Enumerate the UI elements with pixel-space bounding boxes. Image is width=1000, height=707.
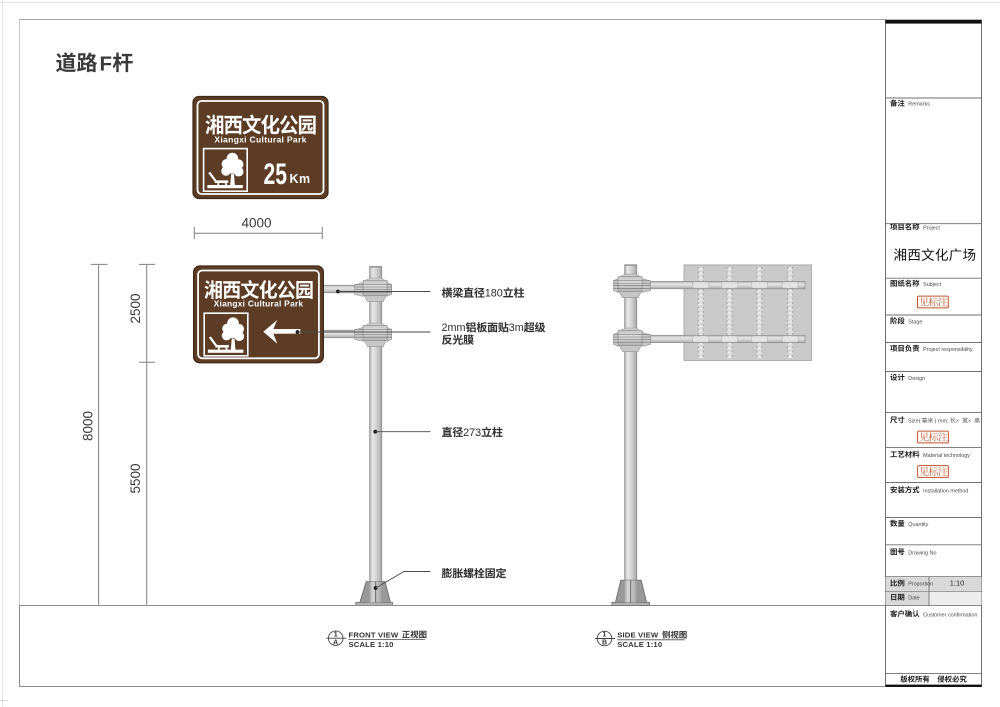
svg-text:Design: Design [908, 376, 925, 382]
svg-text:4000: 4000 [241, 216, 271, 231]
svg-text:180: 180 [485, 288, 503, 300]
svg-text:1:10: 1:10 [950, 579, 964, 588]
svg-text:×: × [956, 418, 959, 424]
svg-text:Size(: Size( [908, 418, 921, 424]
svg-text:2mm: 2mm [442, 322, 466, 334]
svg-text:3m: 3m [509, 322, 524, 334]
svg-text:5500: 5500 [128, 463, 143, 493]
svg-text:Subject: Subject [923, 282, 941, 288]
svg-text:Xiangxi Cultural Park: Xiangxi Cultural Park [214, 134, 306, 144]
svg-text:A: A [333, 639, 338, 646]
svg-text:Project: Project [923, 225, 940, 231]
svg-text:Material technology: Material technology [923, 453, 970, 459]
svg-text:Stage: Stage [908, 319, 922, 325]
svg-text:Project responsibility: Project responsibility [923, 347, 973, 353]
svg-text:Installation method: Installation method [923, 488, 968, 494]
svg-text:×: × [968, 418, 971, 424]
svg-text:1: 1 [334, 631, 338, 638]
svg-text:SCALE 1:10: SCALE 1:10 [349, 640, 394, 649]
svg-text:SCALE 1:10: SCALE 1:10 [617, 640, 662, 649]
svg-text:B: B [602, 640, 607, 647]
svg-text:Proportion: Proportion [908, 582, 933, 588]
svg-text:Drawing No: Drawing No [908, 550, 936, 556]
svg-text:SIDE VIEW: SIDE VIEW [617, 631, 659, 640]
svg-text:Xiangxi Cultural Park: Xiangxi Cultural Park [214, 298, 304, 308]
svg-text:Quantity: Quantity [908, 522, 928, 528]
svg-text:2500: 2500 [128, 293, 143, 323]
svg-text:Km: Km [290, 172, 311, 186]
svg-text:1: 1 [603, 632, 607, 639]
svg-text:273: 273 [463, 427, 481, 439]
svg-text:25: 25 [264, 158, 288, 191]
svg-text:Remarks: Remarks [908, 102, 930, 108]
svg-text:) mm;: ) mm; [935, 418, 950, 424]
svg-text:Customer confirmation: Customer confirmation [923, 612, 977, 618]
svg-text:FRONT VIEW: FRONT VIEW [349, 630, 399, 639]
svg-text:F: F [100, 52, 113, 75]
svg-text:8000: 8000 [81, 411, 96, 441]
svg-text:Date: Date [908, 596, 919, 602]
